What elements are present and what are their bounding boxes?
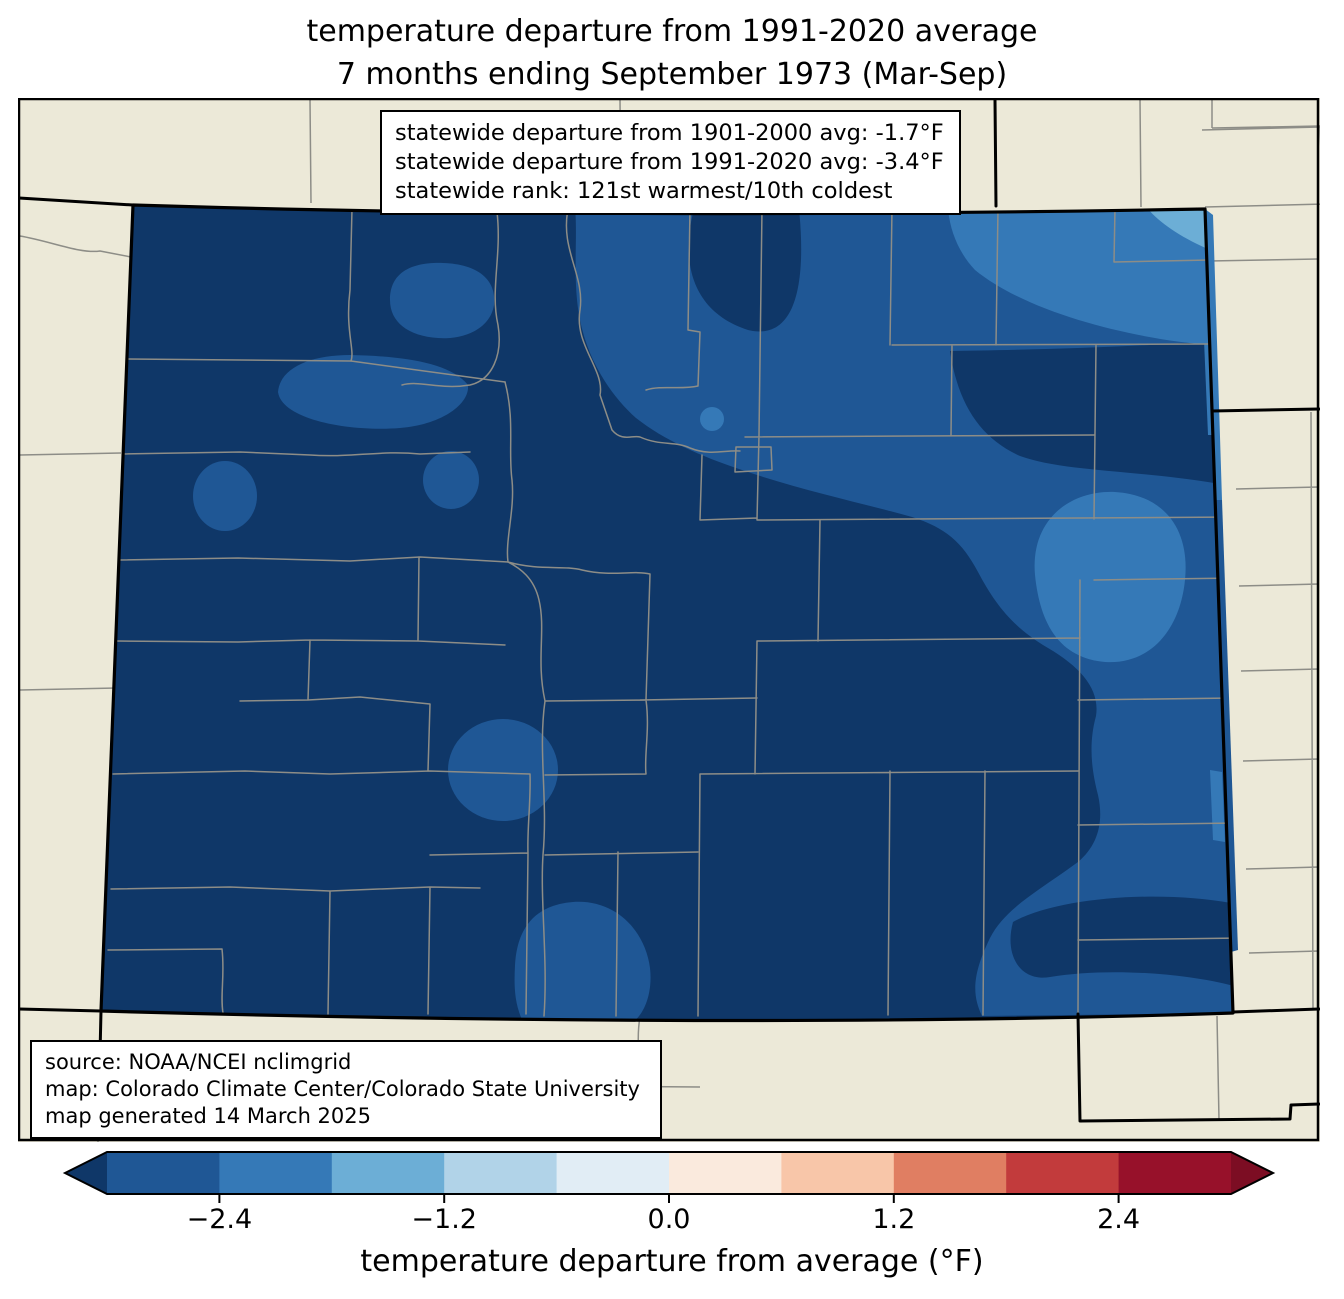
patch-b2-denver-dot	[700, 407, 724, 431]
colorbar-segment	[781, 1152, 894, 1194]
colorbar	[0, 1148, 1344, 1206]
colorbar-ticks: −2.4−1.20.01.22.4	[0, 1204, 1344, 1240]
colorbar-segment	[219, 1152, 332, 1194]
colorbar-tick-label: 2.4	[1097, 1204, 1140, 1235]
colorbar-tick-label: −2.4	[187, 1204, 253, 1235]
source-line-1: source: NOAA/NCEI nclimgrid	[45, 1049, 647, 1076]
colorbar-over-arrow	[1231, 1152, 1273, 1194]
colorado-map	[18, 98, 1320, 1142]
source-box: source: NOAA/NCEI nclimgrid map: Colorad…	[30, 1040, 662, 1139]
colorbar-segment	[894, 1152, 1007, 1194]
blob-b1-southwest	[448, 719, 558, 821]
source-line-2: map: Colorado Climate Center/Colorado St…	[45, 1076, 647, 1103]
title-line-1: temperature departure from 1991-2020 ave…	[0, 10, 1344, 53]
blob-b1-west-dot	[193, 461, 257, 531]
stats-line-2: statewide departure from 1991-2020 avg: …	[395, 148, 946, 177]
blob-b1-moffat	[390, 263, 494, 338]
colorbar-tick-label: 1.2	[872, 1204, 915, 1235]
colorbar-tick-label: −1.2	[411, 1204, 477, 1235]
colorbar-segment	[444, 1152, 557, 1194]
colorbar-axis-label: temperature departure from average (°F)	[0, 1244, 1344, 1279]
stats-box: statewide departure from 1901-2000 avg: …	[380, 110, 961, 215]
colorbar-segment	[557, 1152, 670, 1194]
colorbar-segment	[1006, 1152, 1119, 1194]
stats-line-3: statewide rank: 121st warmest/10th colde…	[395, 177, 946, 206]
title-line-2: 7 months ending September 1973 (Mar-Sep)	[0, 53, 1344, 96]
colorbar-under-arrow	[65, 1152, 107, 1194]
page-title: temperature departure from 1991-2020 ave…	[0, 10, 1344, 96]
colorbar-segment	[669, 1152, 782, 1194]
source-line-3: map generated 14 March 2025	[45, 1103, 647, 1130]
figure: temperature departure from 1991-2020 ave…	[0, 0, 1344, 1299]
colorbar-segment	[1119, 1152, 1232, 1194]
stats-line-1: statewide departure from 1901-2000 avg: …	[395, 119, 946, 148]
blob-b1-center-dot	[423, 451, 479, 509]
colorbar-segment	[332, 1152, 445, 1194]
colorbar-tick-label: 0.0	[648, 1204, 691, 1235]
colorbar-segment	[107, 1152, 220, 1194]
